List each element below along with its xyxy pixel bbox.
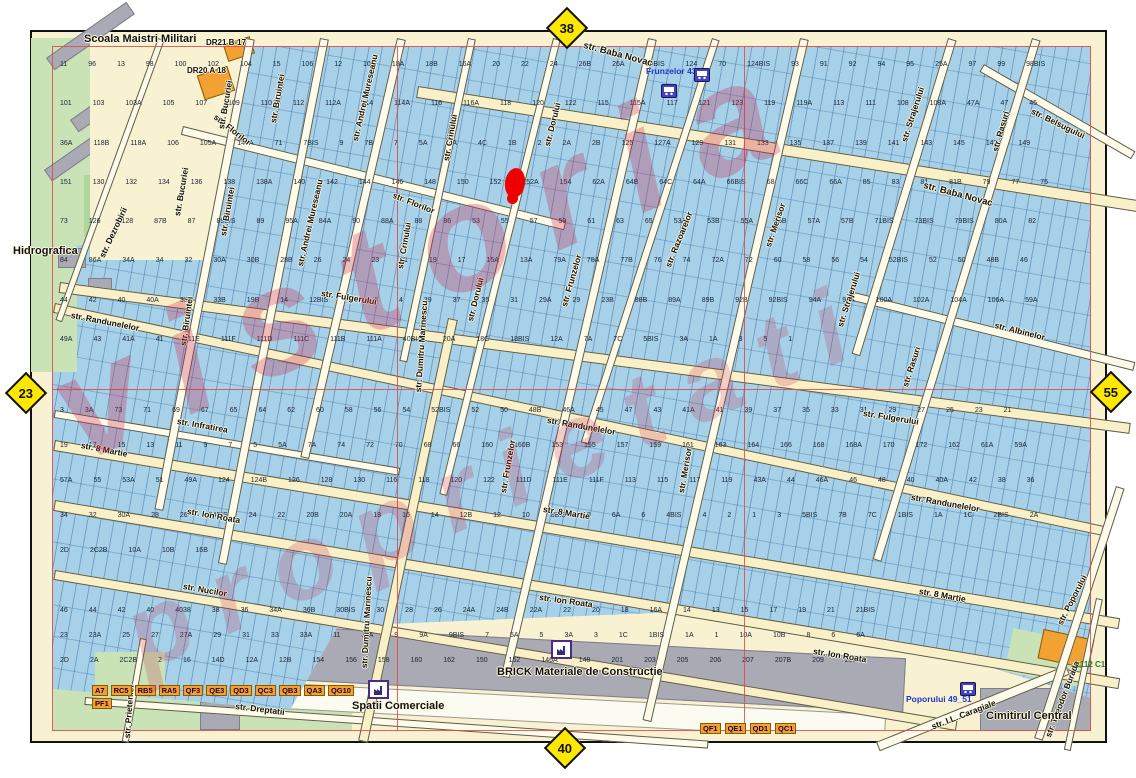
parcel-number: 3 [594, 623, 598, 648]
parcel-number: 24 [550, 52, 558, 77]
page-number: 23 [19, 386, 33, 401]
parcel-number: 30BIS [336, 598, 355, 623]
parcel-number: 14 [683, 598, 691, 623]
building-code: RB5 [135, 685, 156, 696]
map-page: 1196139810010210415106121018A18B16A20222… [0, 0, 1136, 778]
page-number: 38 [560, 21, 574, 36]
parcel-number: 31 [242, 623, 250, 648]
parcel-number: 53B [707, 209, 719, 234]
parcel-number: 75 [1040, 170, 1048, 195]
parcel-number: 11 [175, 433, 182, 458]
parcel-number: 88B [635, 288, 647, 313]
parcel-number: 106 [302, 52, 314, 77]
building-code: QD3 [230, 685, 251, 696]
parcel-number: 70 [718, 52, 726, 77]
parcel-number: 13 [712, 598, 720, 623]
parcel-number: 32 [185, 248, 193, 273]
parcel-number: 34A [122, 248, 134, 273]
parcel-number: 117 [689, 468, 700, 493]
parcel-number: 57A [808, 209, 820, 234]
parcel-number: 17 [458, 248, 466, 273]
parcel-number: 10A [128, 538, 140, 563]
parcel-number: 105A [200, 131, 216, 156]
building-code: QD1 [750, 723, 771, 734]
parcel-number: 94 [877, 52, 885, 77]
parcel-number: 54 [860, 248, 868, 273]
parcel-number: 23 [371, 248, 379, 273]
parcel-number: 163 [715, 433, 727, 458]
parcel-number: 160B [514, 433, 530, 458]
parcel-number: 127A [654, 131, 670, 156]
parcel-number: 36 [241, 598, 249, 623]
parcel-number: 55A [741, 209, 753, 234]
parcel-number: 2 [538, 131, 542, 156]
parcel-number: 21 [827, 598, 835, 623]
parcel-number: 94A [809, 288, 821, 313]
busstop-frunzelor-label: Frunzelor 43 [646, 66, 697, 76]
bus-stop-icon [694, 68, 710, 82]
parcel-number: 15A [487, 248, 499, 273]
parcel-number: 111E [553, 468, 568, 493]
parcel-number: 115A [630, 91, 646, 116]
parcel-number: 112 [293, 91, 304, 116]
parcel-number: 2B [592, 131, 601, 156]
parcel-number: 28 [405, 598, 413, 623]
parcel-number: 42 [969, 468, 977, 493]
parcel-number: 111C [293, 327, 309, 352]
parcel-number: 5A [510, 623, 519, 648]
parcel-number: 111D [257, 327, 273, 352]
parcel-number: 27A [180, 623, 192, 648]
parcel-number: 26B [579, 52, 591, 77]
parcel-number: 3 [60, 398, 64, 423]
parcel-number: 203 [644, 648, 656, 664]
parcel-number: 115 [598, 91, 609, 116]
parcel-number: 140 [293, 170, 305, 195]
parcel-number: 47A [967, 91, 979, 116]
parcel-number: 66BIS [727, 170, 746, 195]
parcel-number: 40A [146, 288, 158, 313]
parcel-number: 120 [450, 468, 462, 493]
parcel-number: 5 [763, 327, 767, 352]
parcel-number: 7C [613, 327, 622, 352]
parcel-number: 12A [246, 648, 258, 664]
parcel-number: 126 [288, 468, 300, 493]
parcel-number: 72A [711, 248, 723, 273]
parcel-number: 152 [490, 170, 502, 195]
red-marker [507, 193, 518, 204]
parcel-number: 123 [731, 91, 743, 116]
parcel-number: 125 [622, 131, 634, 156]
parcel-number: 121 [699, 91, 711, 116]
parcel-number: 65 [230, 398, 238, 423]
parcel-number: 29 [573, 288, 581, 313]
parcel-number: 103A [125, 91, 141, 116]
parcel-number: 6A [856, 623, 865, 648]
parcel-number: 22 [278, 503, 286, 528]
parcel-number: 111A [366, 327, 381, 352]
parcel-number: 78A [587, 248, 599, 273]
parcel-number: 12A [550, 327, 562, 352]
parcel-number: 1A [709, 327, 718, 352]
parcel-number: 61 [587, 209, 595, 234]
parcel-number: 3 [777, 503, 781, 528]
parcel-number: 152 [509, 648, 521, 664]
parcel-number: 73 [60, 209, 68, 234]
parcel-number: 34A [269, 598, 281, 623]
building-code: QB3 [279, 685, 300, 696]
spatii-label: Spatii Comerciale [352, 700, 444, 712]
parcel-number: 88 [415, 209, 423, 234]
parcel-number: 102A [913, 288, 929, 313]
parcel-number: 25A [935, 52, 947, 77]
parcel-number: 79 [983, 170, 991, 195]
parcel-number: 124 [218, 468, 230, 493]
parcel-number: 135 [790, 131, 802, 156]
parcel-number: 9A [419, 623, 428, 648]
parcel-number: 46 [60, 598, 68, 623]
parcel-number: 46 [849, 468, 857, 493]
factory-icon [551, 640, 572, 659]
parcel-number: 39 [745, 398, 753, 423]
parcel-number: 56 [374, 398, 382, 423]
parcel-number: 96 [88, 52, 96, 77]
parcel-number: 59 [559, 209, 567, 234]
parcel-number: 92 [849, 52, 857, 77]
parcel-number: 66C [795, 170, 808, 195]
parcel-number: 106 [167, 131, 179, 156]
building-code: QC3 [255, 685, 276, 696]
bus-stop-icon [960, 682, 976, 696]
parcel-number: 130 [353, 468, 365, 493]
parcel-number: 106A [988, 288, 1004, 313]
parcel-number: 79BIS [955, 209, 974, 234]
parcel-number: 111 [865, 91, 876, 116]
parcel-number: 92BIS [769, 288, 788, 313]
parcel-number: 49A [60, 327, 72, 352]
parcel-number: 33 [271, 623, 279, 648]
parcel-number: 51 [156, 468, 164, 493]
parcel-number: 1 [715, 623, 719, 648]
parcel-number: 100 [175, 52, 187, 77]
parcel-number: 6 [641, 503, 645, 528]
building-codes: A7RC5RB5RA5QF3QE3QD3QC3QB3QA3QG10PF1 [92, 684, 362, 710]
parcel-number: 56 [831, 248, 839, 273]
parcel-number: 119 [764, 91, 775, 116]
parcel-number: 20A [443, 327, 455, 352]
parcel-number: 6 [831, 623, 835, 648]
parcel-number: 18BIS [510, 327, 529, 352]
parcel-number: 72 [745, 248, 753, 273]
parcel-number: 8 [806, 623, 810, 648]
parcel-number: 136 [191, 170, 203, 195]
parcel-number: 11 [60, 52, 67, 77]
parcel-number: 139 [855, 131, 867, 156]
parcel-number: 18B [425, 52, 437, 77]
parcel-number: 7 [228, 433, 232, 458]
parcel-number: 9BIS [449, 623, 464, 648]
parcel-number: 21BIS [856, 598, 875, 623]
parcel-number: 12 [334, 52, 342, 77]
parcel-number: 43A [753, 468, 765, 493]
parcel-number: 42 [118, 598, 126, 623]
parcel-number: 153 [551, 433, 563, 458]
parcel-number: 168A [846, 433, 862, 458]
parcel-number: 1 [788, 327, 792, 352]
parcel-number: 30B [247, 248, 259, 273]
parcel-number: 26 [314, 248, 322, 273]
parcel-number: 57A [60, 468, 72, 493]
parcel-number: 14D [212, 648, 225, 664]
parcel-number: 113 [625, 468, 636, 493]
parcel-number: 168 [813, 433, 825, 458]
parcel-number: 142 [326, 170, 338, 195]
parcel-number: 148 [424, 170, 436, 195]
parcel-number: 137 [822, 131, 834, 156]
parcel-number: 18 [621, 598, 629, 623]
parcel-number: 2 [727, 503, 731, 528]
parcel-number: 6A [612, 503, 621, 528]
parcel-number: 20A [340, 503, 352, 528]
parcel-number: 36B [303, 598, 315, 623]
parcel-number: 28 [151, 503, 159, 528]
parcel-number: 104A [950, 288, 966, 313]
parcel-number: 18A [392, 52, 404, 77]
parcel-number: 85 [863, 170, 871, 195]
parcel-number: 52 [471, 398, 479, 423]
parcel-number: 119A [796, 91, 812, 116]
parcel-number: 40A [936, 468, 948, 493]
parcel-number: 44 [60, 288, 68, 313]
parcel-number: 73 [114, 398, 122, 423]
parcel-number: 3A [679, 327, 688, 352]
parcel-number: 138A [256, 170, 272, 195]
parcel-number: 27 [151, 623, 159, 648]
parcel-number: 5 [540, 623, 544, 648]
parcel-number: 44 [787, 468, 795, 493]
parcel-number: 7C [868, 503, 877, 528]
parcel-number: 5A [419, 131, 428, 156]
parcel-number: 41 [156, 327, 164, 352]
parcel-number: 95 [906, 52, 914, 77]
parcel-number: 1BIS [898, 503, 913, 528]
parcel-number: 16 [402, 503, 410, 528]
building-code: QE1 [725, 723, 746, 734]
parcel-number: 60 [316, 398, 324, 423]
parcel-number: 97 [969, 52, 977, 77]
parcel-number: 20B [306, 503, 318, 528]
parcel-number: 116A [463, 91, 479, 116]
parcel-number: 64A [693, 170, 705, 195]
parcel-number: 73BIS [915, 209, 934, 234]
building-code: QC1 [775, 723, 796, 734]
parcel-number: 19 [798, 598, 806, 623]
parcel-number: 98 [146, 52, 154, 77]
parcel-number: 116 [386, 468, 397, 493]
parcel-number: 118 [500, 91, 511, 116]
parcel-number: 89 [257, 209, 265, 234]
parcel-number: 120 [532, 91, 544, 116]
parcel-number: 207B [775, 648, 791, 664]
parcel-number: 7A [584, 327, 593, 352]
parcel-number: 112A [325, 91, 341, 116]
parcel-number: 100A [876, 288, 892, 313]
parcel-number: 101 [60, 91, 72, 116]
parcel-number: 132 [125, 170, 137, 195]
parcel-number: 103 [93, 91, 105, 116]
parcel-number: 71 [143, 398, 151, 423]
parcel-number: 59A [1025, 288, 1037, 313]
parcel-number: 64B [626, 170, 638, 195]
parcel-number: 130 [93, 170, 105, 195]
parcel-number: 118 [418, 468, 429, 493]
parcel-number: 1C [619, 623, 628, 648]
page-number: 55 [1104, 385, 1118, 400]
parcel-number: 131 [724, 131, 736, 156]
parcel-number: 19 [60, 433, 68, 458]
parcel-number: 1B [508, 131, 517, 156]
parcel-number: 24 [343, 248, 351, 273]
parcel-number: 116 [431, 91, 442, 116]
parcel-number: 7B [364, 131, 373, 156]
parcel-number: 37 [453, 288, 461, 313]
building-code: RA5 [159, 685, 180, 696]
parcel-number: 129 [692, 131, 704, 156]
parcel-number: 54 [402, 398, 410, 423]
building-code: QG10 [328, 685, 354, 696]
parcel-number: 17 [769, 598, 777, 623]
parcel-number: 7B [838, 503, 847, 528]
parcel-number: 143 [920, 131, 932, 156]
parcel-number: 62 [287, 398, 295, 423]
brick-label: BRICK Materiale de Constructie [497, 666, 663, 678]
parcel-number: 93 [791, 52, 799, 77]
parcel-number: 38 [212, 598, 220, 623]
parcel-number: 2C2B [120, 648, 138, 664]
parcel-number: 68 [767, 170, 775, 195]
parcel-number: 162 [443, 648, 455, 664]
parcel-number: 12B [279, 648, 291, 664]
parcel-number: 87B [154, 209, 166, 234]
parcel-number: 45 [596, 398, 604, 423]
parcel-number: 118B [93, 131, 109, 156]
parcel-number: 144 [359, 170, 371, 195]
parcel-number: 25 [122, 623, 130, 648]
parcel-number: 156 [345, 648, 357, 664]
parcel-number: 25 [946, 398, 954, 423]
parcel-number: 2A [562, 131, 571, 156]
parcel-number: 5A [278, 433, 287, 458]
parcel-number: 48 [878, 468, 886, 493]
parcel-number: 90 [352, 209, 360, 234]
parcel-number: 53A [122, 468, 134, 493]
parcel-number: 24 [249, 503, 257, 528]
dr20-label: DR20 A 18 [187, 66, 226, 75]
parcel-number: 159 [649, 433, 661, 458]
parcel-number: 206 [709, 648, 721, 664]
parcel-number: 108A [930, 91, 946, 116]
parcel-number: 57 [530, 209, 538, 234]
parcel-number: 2A [1030, 503, 1039, 528]
parcel-number: 46A [816, 468, 828, 493]
cimitir-label: Cimitirul Central [986, 710, 1072, 722]
parcel-number: 20 [492, 52, 500, 77]
parcel-number: 65 [645, 209, 653, 234]
parcel-number: 160 [411, 648, 423, 664]
parcel-number: 133 [757, 131, 769, 156]
parcel-number: 111B [330, 327, 345, 352]
parcel-number: 10A [740, 623, 752, 648]
parcel-number: 74 [683, 248, 691, 273]
grid-line [52, 389, 1091, 390]
building-code: PF1 [92, 698, 112, 709]
dr21-label: DR21 B-17 [206, 38, 246, 47]
building-code: QE3 [206, 685, 227, 696]
parcel-number: 91 [820, 52, 828, 77]
page-number: 40 [558, 741, 572, 756]
parcel-number: 43 [93, 327, 101, 352]
parcel-number: 46 [1020, 248, 1028, 273]
parcel-number: 80A [995, 209, 1007, 234]
parcel-number: 14 [431, 503, 439, 528]
parcel-number: 150 [476, 648, 488, 664]
parcel-number: 104 [240, 52, 252, 77]
parcel-number: 33B [213, 288, 225, 313]
parcel-number: 122 [565, 91, 577, 116]
parcel-number: 87 [188, 209, 196, 234]
parcel-number: 113 [833, 91, 844, 116]
parcel-number: 33 [831, 398, 839, 423]
parcel-number: 2A [90, 648, 99, 664]
school-label: Scoala Maistri Militari [84, 33, 196, 45]
parcel-number: 160 [481, 433, 493, 458]
parcel-number: 92B [735, 288, 747, 313]
parcel-number: 10B [162, 538, 174, 563]
parcel-number: 16A [650, 598, 662, 623]
parcel-number: 88A [381, 209, 393, 234]
parcel-number: 59A [1014, 433, 1026, 458]
parcel-number: 107 [195, 91, 207, 116]
building-code: QF3 [183, 685, 204, 696]
parcel-number: 22 [521, 52, 529, 77]
parcel-number: 7BIS [303, 131, 318, 156]
parcel-number: 170 [883, 433, 895, 458]
parcel-number: 166 [780, 433, 792, 458]
parcel-number: 141 [888, 131, 900, 156]
parcel-number: 4 [399, 288, 403, 313]
parcel-number: 55 [501, 209, 509, 234]
parcel-number: 58 [345, 398, 353, 423]
parcel-number: 2D [60, 648, 69, 664]
parcel-number: 157 [617, 433, 629, 458]
parcel-number: 64C [659, 170, 672, 195]
parcel-number: 13 [117, 52, 125, 77]
parcel-number: 48B [529, 398, 541, 423]
parcel-number: 126 [89, 209, 101, 234]
building-code: A7 [92, 685, 108, 696]
parcel-numbers: 464442404038383634A36B30BIS30282624A24B2… [60, 598, 900, 664]
parcel-number: 10 [522, 503, 530, 528]
parcel-number: 149 [1019, 131, 1031, 156]
parcel-number: 64 [258, 398, 266, 423]
parcel-number: 134 [158, 170, 170, 195]
parcel-number: 89A [668, 288, 680, 313]
parcel-number: 36A [60, 131, 72, 156]
parcel-number: 21 [1004, 398, 1012, 423]
parcel-number: 4038 [175, 598, 191, 623]
parcel-number: 66 [453, 433, 461, 458]
parcel-number: 148 [579, 648, 591, 664]
